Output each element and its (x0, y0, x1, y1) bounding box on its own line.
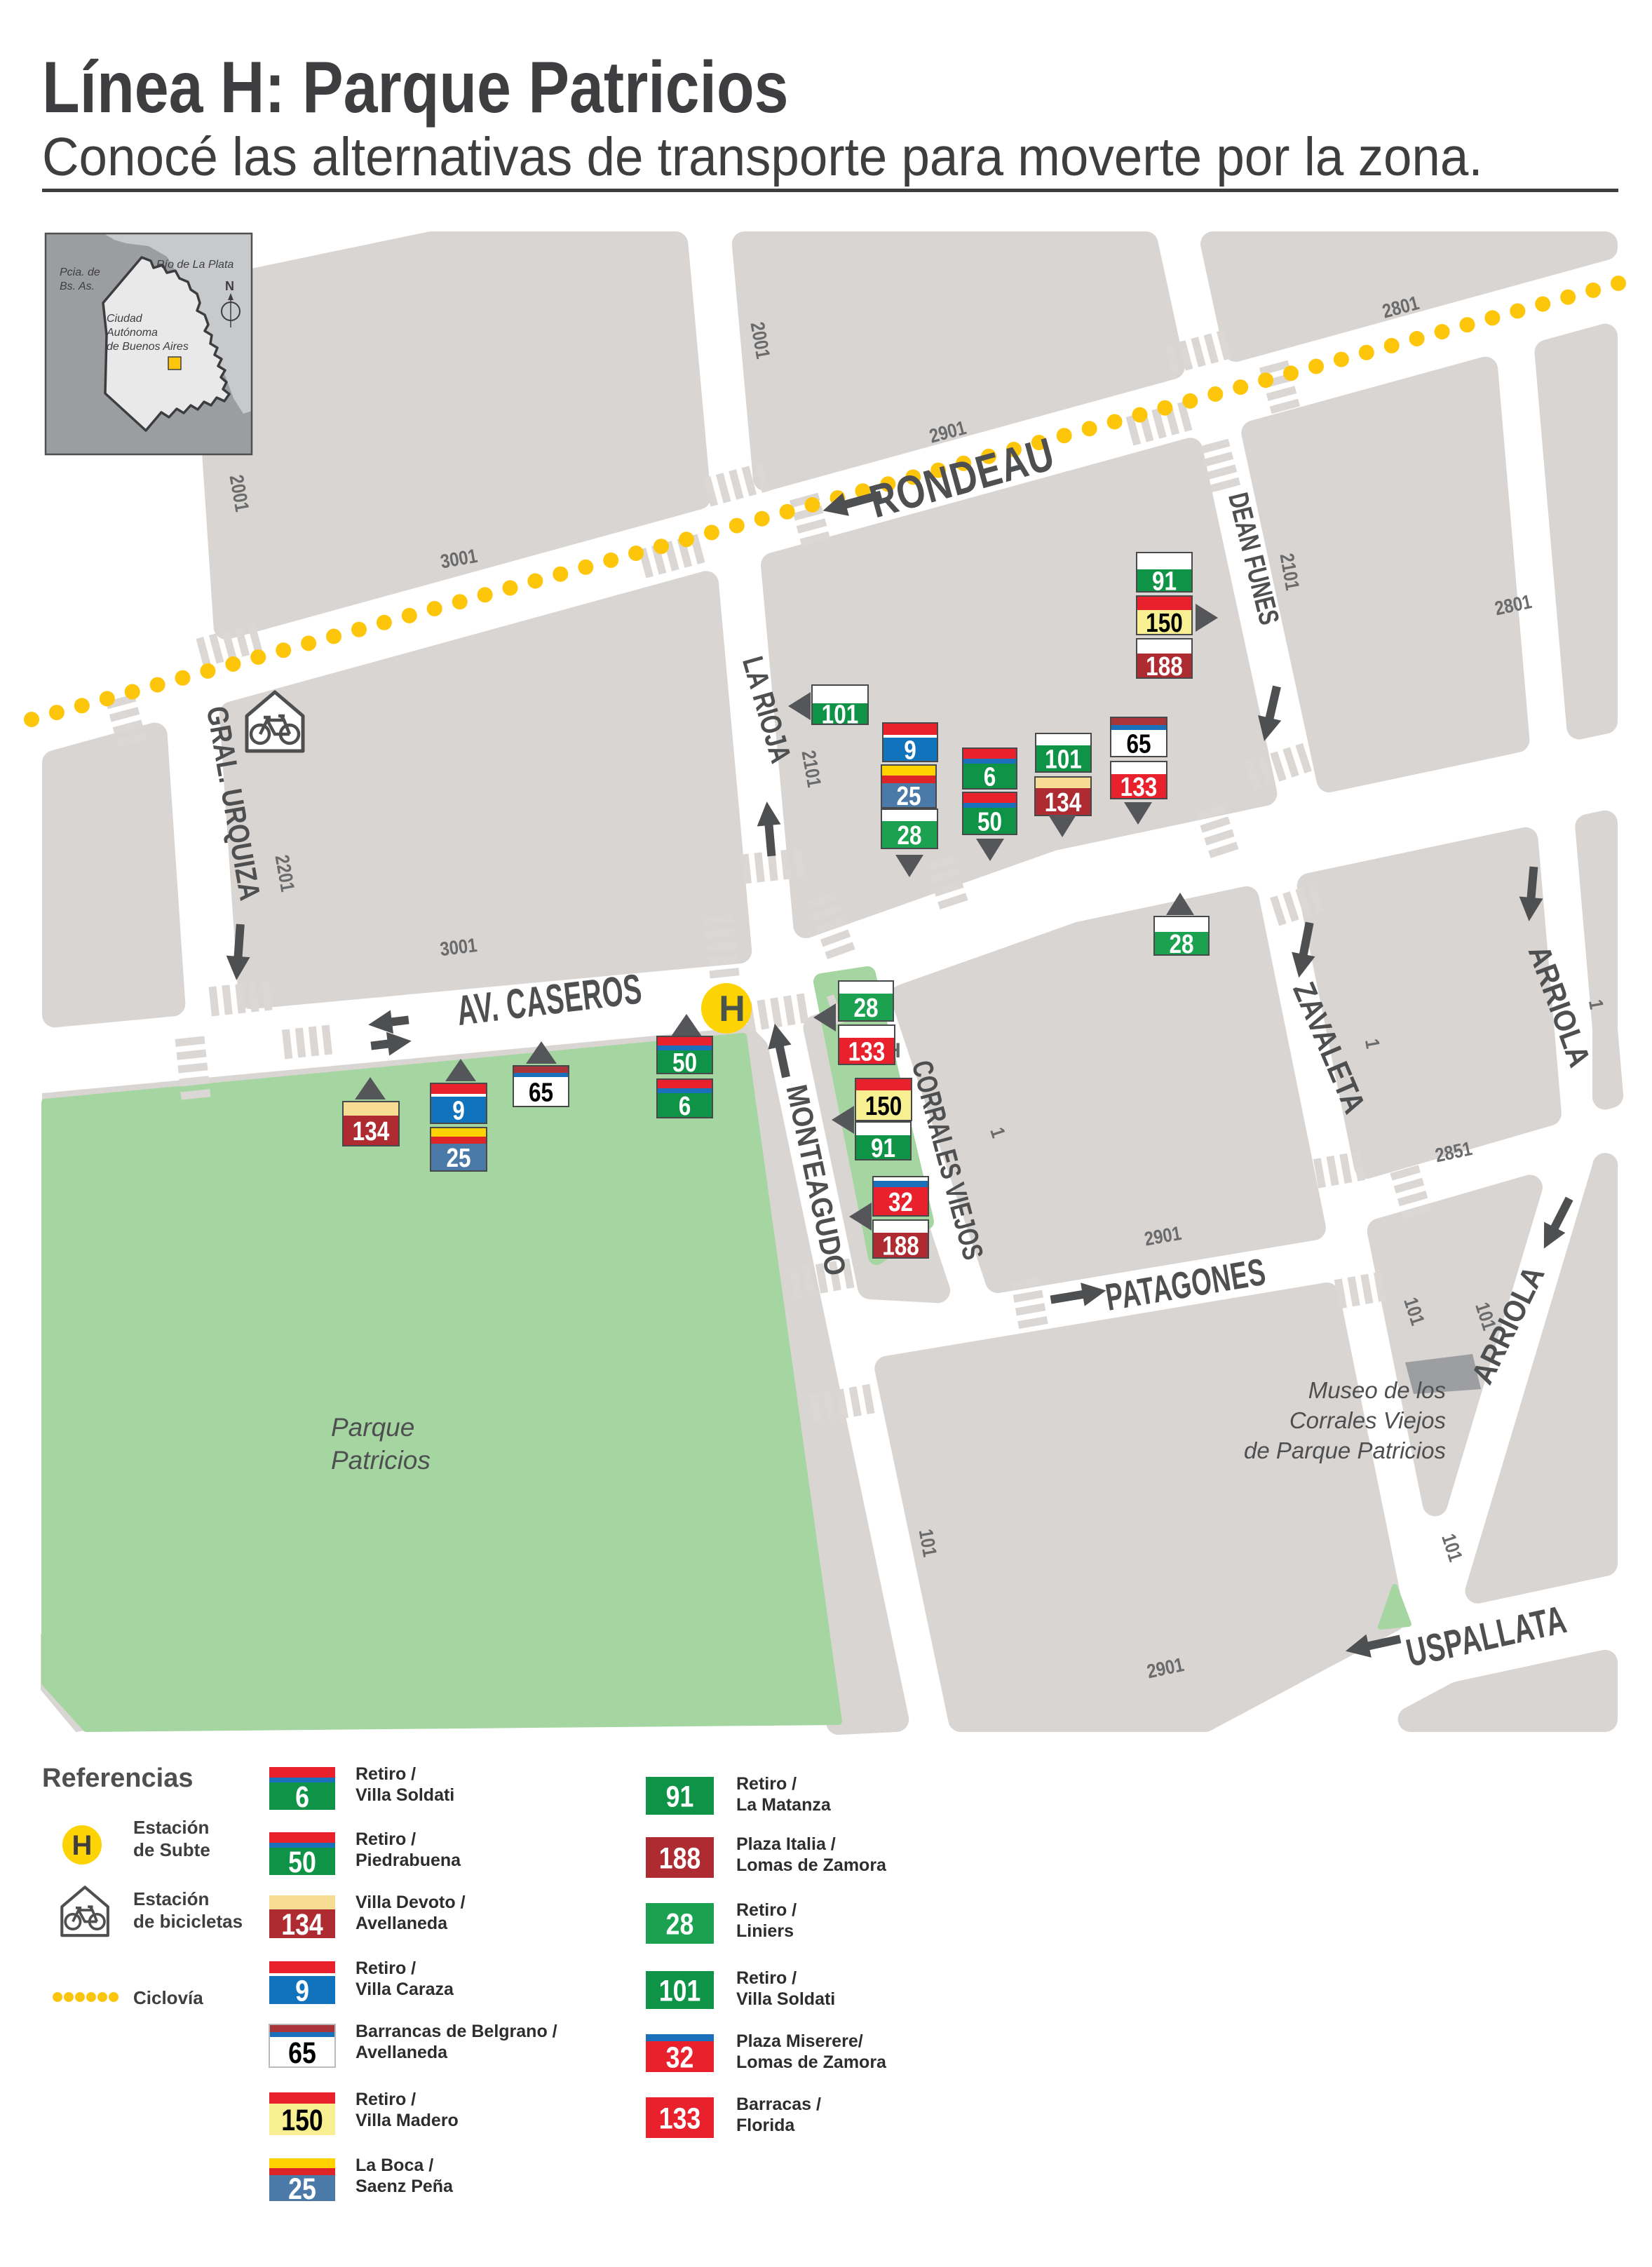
svg-text:Plaza Italia /: Plaza Italia / (736, 1834, 836, 1854)
svg-text:Lomas de Zamora: Lomas de Zamora (736, 2052, 887, 2072)
svg-text:134: 134 (1045, 787, 1082, 817)
svg-text:Río de La Plata: Río de La Plata (156, 259, 233, 271)
svg-text:28: 28 (666, 1907, 694, 1941)
svg-text:Villa Caraza: Villa Caraza (356, 1980, 454, 1999)
svg-text:188: 188 (659, 1841, 701, 1875)
svg-text:Retiro /: Retiro / (356, 1958, 416, 1978)
svg-text:de Buenos Aires: de Buenos Aires (107, 341, 189, 353)
svg-text:Estación: Estación (133, 1888, 209, 1909)
svg-text:101: 101 (659, 1974, 701, 2008)
svg-text:Línea H: Parque Patricios: Línea H: Parque Patricios (42, 47, 789, 128)
svg-text:133: 133 (848, 1037, 886, 1067)
svg-text:91: 91 (871, 1133, 895, 1163)
svg-text:Retiro /: Retiro / (736, 1900, 797, 1920)
svg-text:H: H (719, 989, 745, 1029)
svg-text:Avellaneda: Avellaneda (356, 1914, 448, 1933)
svg-text:Retiro /: Retiro / (356, 1764, 416, 1784)
svg-text:Avellaneda: Avellaneda (356, 2043, 448, 2062)
svg-text:101: 101 (822, 700, 859, 729)
svg-text:Retiro /: Retiro / (736, 1968, 797, 1988)
svg-text:28: 28 (853, 993, 878, 1022)
svg-text:133: 133 (659, 2102, 701, 2135)
svg-text:Pcia. de: Pcia. de (60, 266, 100, 278)
svg-text:La Boca /: La Boca / (356, 2156, 433, 2175)
svg-text:Liniers: Liniers (736, 1921, 794, 1941)
svg-text:N: N (225, 279, 234, 293)
svg-text:50: 50 (977, 807, 1002, 837)
svg-text:9: 9 (452, 1096, 465, 1125)
svg-text:Estación: Estación (133, 1817, 209, 1838)
svg-text:Autónoma: Autónoma (106, 327, 158, 339)
svg-text:25: 25 (446, 1143, 470, 1172)
svg-text:65: 65 (1126, 729, 1151, 759)
svg-text:de bicicletas: de bicicletas (133, 1911, 243, 1932)
svg-text:de Subte: de Subte (133, 1839, 210, 1860)
svg-text:Villa Madero: Villa Madero (356, 2111, 459, 2130)
svg-text:de Parque Patricios: de Parque Patricios (1244, 1437, 1446, 1463)
svg-text:188: 188 (882, 1231, 919, 1261)
svg-text:Villa Devoto /: Villa Devoto / (356, 1893, 466, 1912)
svg-text:Piedrabuena: Piedrabuena (356, 1850, 461, 1870)
svg-text:6: 6 (984, 762, 996, 792)
svg-text:6: 6 (295, 1780, 309, 1814)
svg-text:32: 32 (888, 1187, 913, 1217)
svg-text:Villa Soldati: Villa Soldati (736, 1989, 835, 2009)
svg-text:Retiro /: Retiro / (356, 1829, 416, 1849)
svg-text:134: 134 (281, 1908, 323, 1942)
svg-text:Parque: Parque (331, 1413, 414, 1442)
svg-text:32: 32 (666, 2041, 694, 2074)
svg-text:Conocé las alternativas de tra: Conocé las alternativas de transporte pa… (42, 126, 1483, 187)
svg-text:Barrancas de Belgrano /: Barrancas de Belgrano / (356, 2022, 557, 2041)
svg-text:Patricios: Patricios (331, 1446, 431, 1475)
svg-text:Museo de los: Museo de los (1308, 1377, 1446, 1403)
svg-text:91: 91 (666, 1780, 694, 1813)
svg-text:25: 25 (288, 2172, 316, 2206)
svg-text:65: 65 (288, 2036, 316, 2070)
svg-text:150: 150 (865, 1091, 902, 1121)
svg-text:Lomas de Zamora: Lomas de Zamora (736, 1855, 887, 1875)
svg-text:65: 65 (529, 1078, 553, 1107)
svg-text:28: 28 (897, 820, 921, 850)
svg-text:50: 50 (288, 1846, 316, 1879)
svg-text:La Matanza: La Matanza (736, 1795, 832, 1815)
svg-text:150: 150 (281, 2104, 323, 2137)
svg-text:134: 134 (353, 1116, 390, 1146)
svg-text:Barracas /: Barracas / (736, 2095, 821, 2114)
svg-text:3001: 3001 (439, 933, 478, 961)
svg-text:Ciudad: Ciudad (107, 313, 143, 325)
svg-text:Villa Soldati: Villa Soldati (356, 1785, 454, 1805)
svg-text:188: 188 (1146, 651, 1183, 681)
svg-text:Retiro /: Retiro / (736, 1774, 797, 1794)
svg-text:Bs. As.: Bs. As. (60, 280, 95, 292)
svg-text:6: 6 (679, 1091, 691, 1121)
svg-text:Plaza Miserere/: Plaza Miserere/ (736, 2031, 863, 2051)
svg-text:101: 101 (914, 1527, 942, 1559)
svg-text:133: 133 (1120, 772, 1158, 801)
svg-text:25: 25 (896, 781, 921, 811)
svg-text:Corrales Viejos: Corrales Viejos (1289, 1407, 1446, 1433)
svg-text:Saenz Peña: Saenz Peña (356, 2177, 454, 2196)
svg-text:9: 9 (295, 1974, 309, 2008)
svg-text:101: 101 (1045, 745, 1082, 774)
svg-text:150: 150 (1146, 608, 1183, 637)
svg-text:Florida: Florida (736, 2116, 795, 2135)
svg-text:Retiro /: Retiro / (356, 2090, 416, 2109)
svg-text:Ciclovía: Ciclovía (133, 1987, 203, 2008)
svg-text:H: H (72, 1830, 93, 1861)
svg-text:Referencias: Referencias (42, 1764, 193, 1793)
